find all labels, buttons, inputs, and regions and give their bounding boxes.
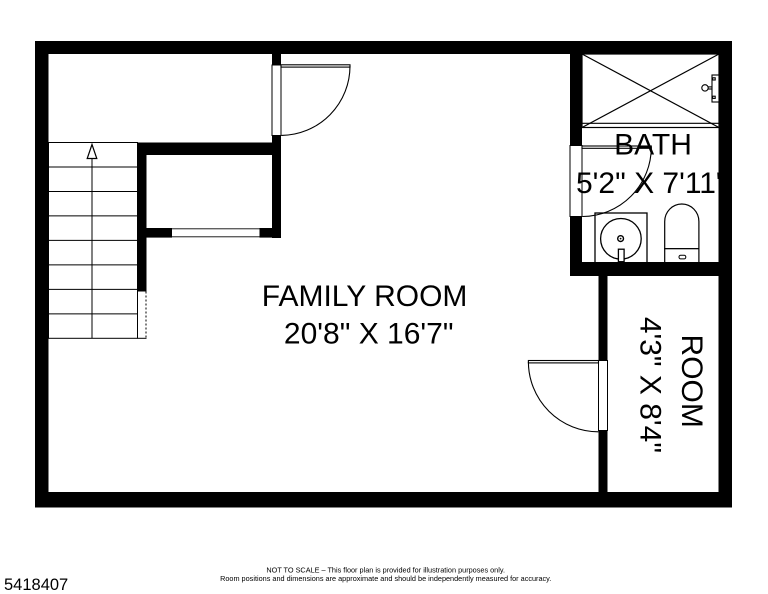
svg-text:BATH: BATH xyxy=(614,129,692,162)
svg-text:20'8" X 16'7": 20'8" X 16'7" xyxy=(284,318,454,351)
svg-text:ROOM: ROOM xyxy=(675,335,708,428)
svg-text:5'2" X 7'11": 5'2" X 7'11" xyxy=(576,167,727,200)
svg-text:4'3" X 8'4": 4'3" X 8'4" xyxy=(634,317,667,453)
svg-text:Room positions and dimensions: Room positions and dimensions are approx… xyxy=(220,574,551,583)
svg-text:FAMILY ROOM: FAMILY ROOM xyxy=(262,280,468,313)
svg-text:5418407: 5418407 xyxy=(4,576,68,594)
